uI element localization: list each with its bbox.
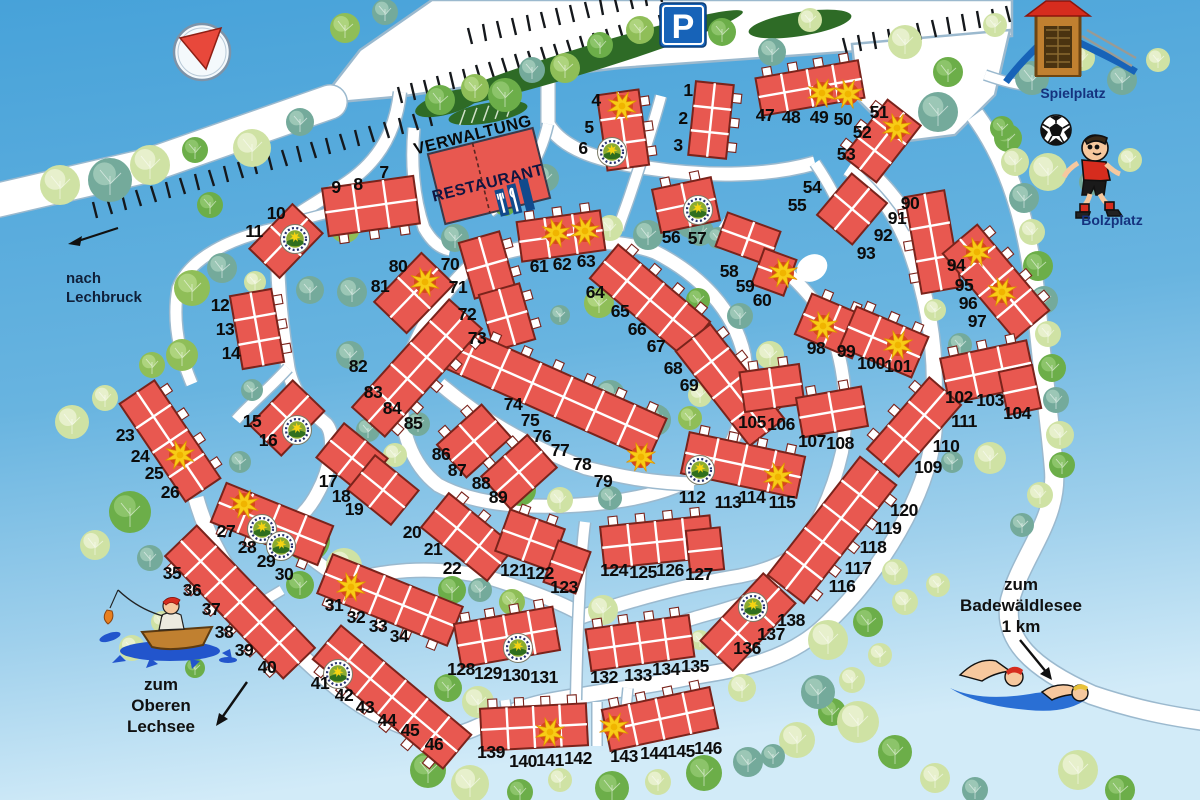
svg-text:89: 89 <box>489 487 508 507</box>
svg-text:11: 11 <box>245 221 263 241</box>
svg-text:Lechbruck: Lechbruck <box>66 289 143 306</box>
svg-text:27: 27 <box>217 521 235 541</box>
svg-text:3: 3 <box>673 135 683 155</box>
svg-text:145: 145 <box>667 741 695 761</box>
svg-text:33: 33 <box>369 616 388 636</box>
svg-text:35: 35 <box>163 563 182 583</box>
svg-text:70: 70 <box>441 254 460 274</box>
svg-text:38: 38 <box>215 622 234 642</box>
svg-text:143: 143 <box>610 746 638 766</box>
svg-text:15: 15 <box>243 411 262 431</box>
svg-text:128: 128 <box>447 659 475 679</box>
svg-text:100: 100 <box>857 353 885 373</box>
svg-text:141: 141 <box>536 750 564 770</box>
svg-text:1 km: 1 km <box>1002 617 1041 636</box>
svg-text:55: 55 <box>788 195 807 215</box>
svg-text:144: 144 <box>640 743 668 763</box>
svg-text:42: 42 <box>335 685 354 705</box>
svg-text:7: 7 <box>379 162 388 182</box>
svg-text:48: 48 <box>782 107 801 127</box>
svg-text:Oberen: Oberen <box>131 696 191 715</box>
svg-text:126: 126 <box>656 560 684 580</box>
svg-text:78: 78 <box>573 454 592 474</box>
svg-text:83: 83 <box>364 382 383 402</box>
svg-text:23: 23 <box>116 425 135 445</box>
svg-text:85: 85 <box>404 413 423 433</box>
svg-text:93: 93 <box>857 243 876 263</box>
svg-text:95: 95 <box>955 275 974 295</box>
svg-text:65: 65 <box>611 301 630 321</box>
svg-text:30: 30 <box>275 564 294 584</box>
svg-text:54: 54 <box>803 177 822 197</box>
svg-text:125: 125 <box>629 562 657 582</box>
svg-text:77: 77 <box>551 440 569 460</box>
svg-text:131: 131 <box>530 667 558 687</box>
svg-text:40: 40 <box>258 657 277 677</box>
svg-text:9: 9 <box>331 177 341 197</box>
svg-text:8: 8 <box>353 174 363 194</box>
svg-text:47: 47 <box>756 105 774 125</box>
svg-text:P: P <box>672 8 695 46</box>
svg-text:102: 102 <box>945 387 973 407</box>
svg-text:130: 130 <box>502 665 530 685</box>
svg-text:115: 115 <box>769 492 796 512</box>
svg-text:62: 62 <box>553 254 572 274</box>
svg-text:139: 139 <box>477 742 505 762</box>
svg-text:81: 81 <box>371 276 390 296</box>
svg-text:73: 73 <box>468 328 487 348</box>
svg-text:71: 71 <box>449 277 468 297</box>
svg-text:Spielplatz: Spielplatz <box>1040 85 1105 101</box>
svg-text:6: 6 <box>578 138 588 158</box>
svg-text:123: 123 <box>550 577 578 597</box>
svg-text:107: 107 <box>798 431 826 451</box>
svg-text:129: 129 <box>474 663 502 683</box>
svg-text:82: 82 <box>349 356 368 376</box>
svg-text:26: 26 <box>161 482 180 502</box>
svg-text:61: 61 <box>530 256 549 276</box>
svg-text:46: 46 <box>425 734 444 754</box>
svg-text:127: 127 <box>685 564 713 584</box>
svg-text:41: 41 <box>311 673 330 693</box>
svg-text:76: 76 <box>533 426 552 446</box>
svg-text:25: 25 <box>145 463 164 483</box>
svg-text:2: 2 <box>678 108 688 128</box>
svg-text:57: 57 <box>688 228 706 248</box>
svg-text:56: 56 <box>662 227 681 247</box>
svg-text:12: 12 <box>211 295 230 315</box>
svg-text:135: 135 <box>681 656 709 676</box>
svg-text:69: 69 <box>680 375 699 395</box>
svg-text:29: 29 <box>257 551 276 571</box>
svg-text:19: 19 <box>345 499 364 519</box>
svg-text:120: 120 <box>890 500 918 520</box>
svg-text:60: 60 <box>753 290 772 310</box>
svg-text:Lechsee: Lechsee <box>127 717 195 736</box>
svg-text:138: 138 <box>777 610 805 630</box>
svg-text:1: 1 <box>683 80 693 100</box>
svg-text:36: 36 <box>183 580 202 600</box>
svg-text:92: 92 <box>874 225 893 245</box>
svg-text:99: 99 <box>837 341 856 361</box>
svg-text:117: 117 <box>845 558 872 578</box>
svg-text:72: 72 <box>458 304 477 324</box>
svg-text:51: 51 <box>870 102 889 122</box>
svg-text:21: 21 <box>424 539 443 559</box>
svg-text:45: 45 <box>401 720 420 740</box>
svg-text:16: 16 <box>259 430 278 450</box>
svg-text:37: 37 <box>202 599 220 619</box>
svg-text:87: 87 <box>448 460 466 480</box>
svg-text:118: 118 <box>860 537 887 557</box>
svg-text:142: 142 <box>564 748 592 768</box>
svg-text:43: 43 <box>356 697 375 717</box>
svg-text:22: 22 <box>443 558 462 578</box>
svg-text:zum: zum <box>144 675 178 694</box>
svg-text:32: 32 <box>347 607 366 627</box>
svg-text:116: 116 <box>829 576 856 596</box>
svg-text:134: 134 <box>652 659 680 679</box>
svg-text:44: 44 <box>378 710 397 730</box>
svg-text:28: 28 <box>238 537 257 557</box>
svg-text:63: 63 <box>577 251 596 271</box>
svg-text:146: 146 <box>694 738 722 758</box>
svg-text:121: 121 <box>500 560 528 580</box>
svg-text:133: 133 <box>624 665 652 685</box>
svg-text:80: 80 <box>389 256 408 276</box>
svg-text:132: 132 <box>590 667 618 687</box>
svg-text:zum: zum <box>1004 575 1038 594</box>
svg-text:31: 31 <box>325 595 344 615</box>
svg-text:53: 53 <box>837 144 856 164</box>
svg-text:104: 104 <box>1003 403 1031 423</box>
svg-text:64: 64 <box>586 282 605 302</box>
svg-text:4: 4 <box>591 90 601 110</box>
svg-text:39: 39 <box>235 640 254 660</box>
svg-text:109: 109 <box>914 457 942 477</box>
svg-text:20: 20 <box>403 522 422 542</box>
svg-text:84: 84 <box>383 398 402 418</box>
svg-text:105: 105 <box>738 412 766 432</box>
svg-text:112: 112 <box>679 487 706 507</box>
svg-text:114: 114 <box>739 487 766 507</box>
svg-text:10: 10 <box>267 203 286 223</box>
svg-text:79: 79 <box>594 471 613 491</box>
svg-text:106: 106 <box>767 414 795 434</box>
svg-text:96: 96 <box>959 293 978 313</box>
svg-text:50: 50 <box>834 109 853 129</box>
svg-text:Badewäldlesee: Badewäldlesee <box>960 596 1082 615</box>
svg-text:49: 49 <box>810 107 829 127</box>
svg-text:52: 52 <box>853 122 872 142</box>
svg-text:13: 13 <box>216 319 235 339</box>
svg-text:101: 101 <box>884 356 912 376</box>
svg-text:67: 67 <box>647 336 665 356</box>
svg-text:103: 103 <box>976 390 1004 410</box>
svg-text:5: 5 <box>584 117 594 137</box>
svg-text:nach: nach <box>66 270 101 287</box>
svg-text:Bolzplatz: Bolzplatz <box>1081 212 1142 228</box>
svg-text:34: 34 <box>390 626 409 646</box>
svg-text:140: 140 <box>509 751 537 771</box>
svg-text:124: 124 <box>600 560 628 580</box>
svg-text:14: 14 <box>222 343 241 363</box>
svg-text:98: 98 <box>807 338 826 358</box>
svg-text:111: 111 <box>951 411 978 431</box>
svg-text:66: 66 <box>628 319 647 339</box>
svg-text:97: 97 <box>968 311 986 331</box>
svg-text:94: 94 <box>947 255 966 275</box>
svg-text:119: 119 <box>875 518 902 538</box>
svg-text:110: 110 <box>933 436 960 456</box>
svg-text:108: 108 <box>826 433 854 453</box>
